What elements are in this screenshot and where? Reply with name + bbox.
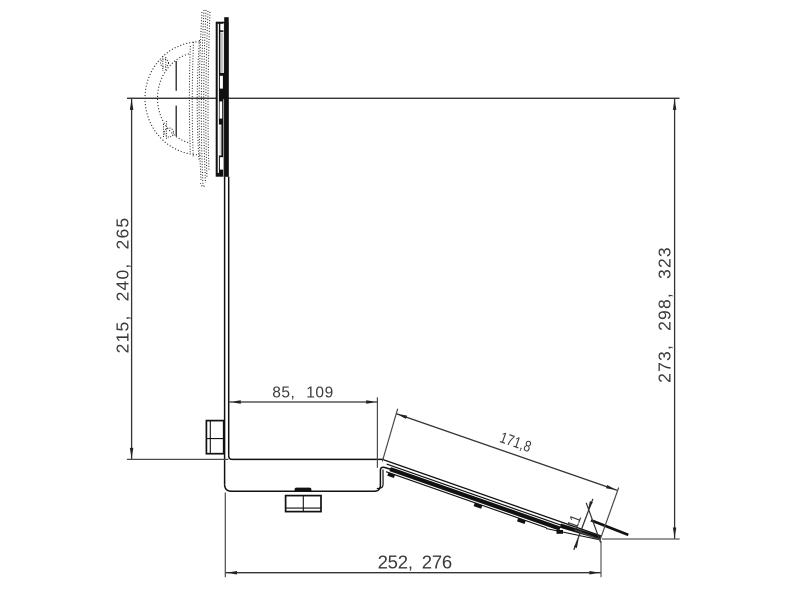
svg-text:252, 276: 252, 276 xyxy=(378,552,452,573)
svg-text:85, 109: 85, 109 xyxy=(272,384,334,401)
svg-text:273, 298, 323: 273, 298, 323 xyxy=(654,246,674,383)
svg-text:215, 240, 265: 215, 240, 265 xyxy=(112,217,132,354)
